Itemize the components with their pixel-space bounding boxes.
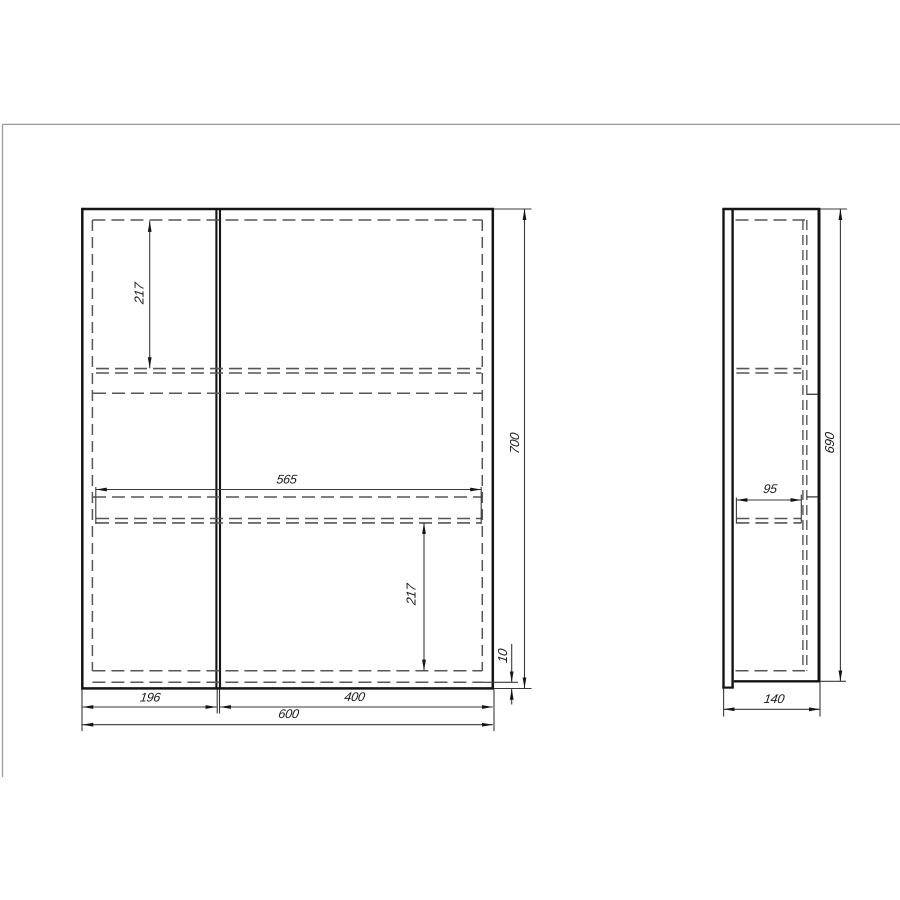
svg-text:600: 600 — [278, 707, 300, 721]
svg-text:217: 217 — [132, 281, 147, 306]
svg-text:700: 700 — [507, 431, 522, 455]
svg-text:690: 690 — [822, 430, 837, 454]
svg-text:400: 400 — [344, 690, 366, 704]
svg-text:217: 217 — [404, 582, 419, 607]
svg-text:565: 565 — [276, 472, 299, 486]
svg-text:140: 140 — [763, 692, 785, 706]
svg-text:95: 95 — [762, 482, 779, 496]
svg-text:10: 10 — [495, 647, 510, 664]
svg-text:196: 196 — [139, 690, 162, 704]
